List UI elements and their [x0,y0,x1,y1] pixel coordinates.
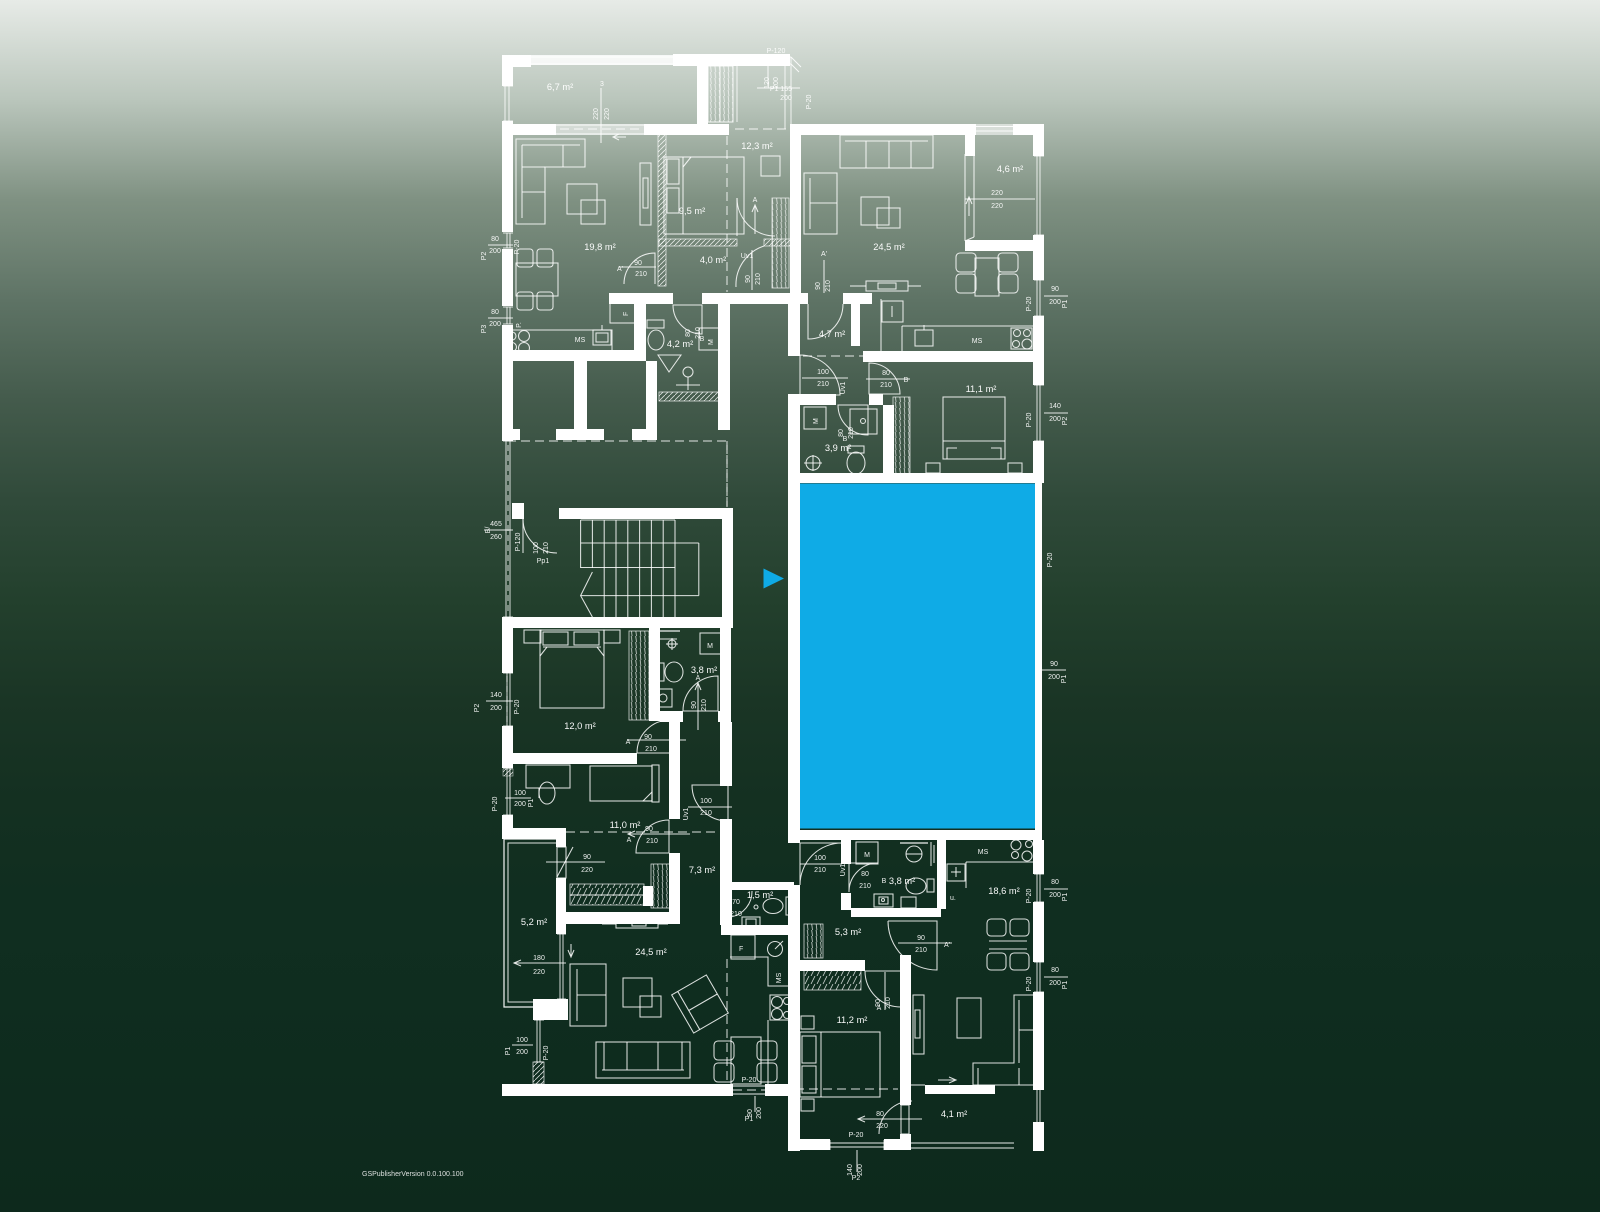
svg-text:Uv1: Uv1 [683,808,690,821]
svg-text:100: 100 [516,1037,528,1044]
svg-text:220: 220 [991,203,1003,210]
svg-text:19,8 m²: 19,8 m² [584,242,616,252]
svg-text:210: 210 [885,997,892,1009]
svg-text:B/: B/ [485,527,492,534]
svg-text:210: 210 [543,542,550,554]
svg-text:P-20: P-20 [543,1046,550,1061]
svg-text:24,5 m²: 24,5 m² [635,947,667,957]
svg-text:100: 100 [514,790,526,797]
svg-text:210: 210 [848,427,855,439]
svg-text:70: 70 [732,899,740,906]
svg-text:P-120: P-120 [767,48,786,55]
svg-text:MS: MS [776,972,783,983]
svg-text:M: M [813,418,820,424]
svg-text:80: 80 [685,329,692,337]
svg-text:GSPublisherVersion 0.0.100.100: GSPublisherVersion 0.0.100.100 [362,1171,464,1178]
svg-text:F: F [623,312,630,316]
svg-text:80: 80 [1051,967,1059,974]
svg-text:90: 90 [1051,286,1059,293]
svg-text:B: B [882,878,887,885]
svg-text:P-20: P-20 [1026,297,1033,312]
svg-text:200: 200 [780,95,792,102]
svg-text:4,2 m²: 4,2 m² [667,339,693,349]
svg-text:80: 80 [882,370,890,377]
svg-text:Uv1: Uv1 [840,382,847,395]
svg-text:210: 210 [814,867,826,874]
svg-text:5,3 m²: 5,3 m² [835,927,861,937]
svg-text:P-20: P-20 [514,700,521,715]
svg-text:P-20: P-20 [1026,413,1033,428]
svg-text:P-20: P-20 [849,1132,864,1139]
svg-text:200: 200 [1049,416,1061,423]
svg-text:210: 210 [755,273,762,285]
svg-text:P-20: P-20 [742,1077,757,1084]
svg-text:90: 90 [645,826,653,833]
svg-text:140: 140 [1049,403,1061,410]
svg-text:6,7 m²: 6,7 m² [547,82,573,92]
svg-text:260: 260 [490,534,502,541]
svg-text:MS: MS [575,337,586,344]
svg-text:4,7 m²: 4,7 m² [819,329,845,339]
svg-text:P2: P2 [1062,417,1069,426]
svg-text:P3: P3 [481,325,488,334]
svg-text:24,5 m²: 24,5 m² [873,242,905,252]
svg-text:220: 220 [581,867,593,874]
svg-text:A: A [877,1005,882,1012]
svg-text:200: 200 [490,705,502,712]
svg-text:3: 3 [600,81,604,88]
svg-text:F: F [739,946,743,953]
svg-text:M: M [864,852,870,859]
svg-text:200: 200 [1048,674,1060,681]
svg-text:210: 210 [700,810,712,817]
svg-text:3,8 m²: 3,8 m² [691,665,717,675]
svg-text:90: 90 [634,260,642,267]
svg-text:210: 210 [645,746,657,753]
svg-text:7,3 m²: 7,3 m² [689,865,715,875]
svg-text:140: 140 [490,692,502,699]
svg-text:P-20: P-20 [1026,977,1033,992]
svg-text:80: 80 [876,1111,884,1118]
svg-text:100: 100 [817,369,829,376]
svg-text:220: 220 [876,1123,888,1130]
svg-text:P.: P. [516,322,523,328]
svg-text:200: 200 [489,321,501,328]
svg-text:P-20: P-20 [1047,553,1054,568]
svg-text:P-20: P-20 [806,95,813,110]
svg-text:P1 155: P1 155 [770,86,792,93]
svg-text:200: 200 [756,1107,763,1119]
svg-text:80: 80 [491,309,499,316]
svg-text:100: 100 [814,855,826,862]
svg-text:90: 90 [691,701,698,709]
svg-text:MS: MS [972,338,983,345]
svg-text:M: M [707,643,713,650]
svg-text:210: 210 [701,699,708,711]
svg-text:P2: P2 [474,704,481,713]
svg-text:A': A' [821,251,827,258]
svg-text:u.: u. [950,895,956,902]
svg-text:4,0 m²: 4,0 m² [700,255,726,265]
svg-text:A': A' [944,942,950,949]
svg-text:Pp1: Pp1 [537,558,550,565]
svg-text:220: 220 [593,108,600,120]
svg-text:210: 210 [859,883,871,890]
svg-text:P1: P1 [1062,300,1069,309]
svg-text:P-20: P-20 [492,797,499,812]
svg-text:4,6 m²: 4,6 m² [997,164,1023,174]
svg-text:3,8 m²: 3,8 m² [889,876,915,886]
svg-text:Uv1: Uv1 [840,864,847,877]
svg-text:P1: P1 [505,1047,512,1056]
svg-text:90: 90 [917,935,925,942]
svg-text:210: 210 [817,381,829,388]
svg-text:12,3 m²: 12,3 m² [741,141,773,151]
svg-text:P-20: P-20 [1026,889,1033,904]
svg-text:80: 80 [1051,879,1059,886]
svg-text:210: 210 [825,280,832,292]
svg-text:11,1 m²: 11,1 m² [966,384,997,394]
svg-text:B: B [904,377,909,384]
svg-text:MS: MS [978,849,989,856]
svg-text:200: 200 [1049,892,1061,899]
svg-text:12,0 m²: 12,0 m² [564,721,596,731]
svg-text:90: 90 [1050,661,1058,668]
svg-text:B: B [700,336,705,343]
svg-text:P1: P1 [1062,893,1069,902]
svg-text:11,0 m²: 11,0 m² [610,820,641,830]
svg-text:1,5 m²: 1,5 m² [747,890,773,900]
svg-text:18,6 m²: 18,6 m² [988,886,1020,896]
svg-text:200: 200 [516,1049,528,1056]
svg-text:180: 180 [533,955,545,962]
svg-text:100: 100 [533,542,540,554]
svg-text:Uv1: Uv1 [741,253,754,260]
svg-text:90: 90 [815,282,822,290]
svg-text:11,2 m²: 11,2 m² [837,1015,868,1025]
svg-text:210: 210 [880,382,892,389]
svg-text:210: 210 [646,838,658,845]
svg-text:90: 90 [745,275,752,283]
svg-text:90: 90 [583,854,591,861]
svg-text:220: 220 [604,108,611,120]
svg-text:M: M [708,339,715,345]
svg-text:210: 210 [730,911,742,918]
svg-text:A: A [626,739,631,746]
svg-text:B: B [843,436,848,443]
svg-text:100: 100 [700,798,712,805]
svg-text:200: 200 [514,801,526,808]
svg-text:9,5 m²: 9,5 m² [679,206,705,216]
svg-text:200: 200 [489,248,501,255]
svg-text:210: 210 [635,271,647,278]
svg-text:A: A [696,675,701,682]
svg-text:P-20: P-20 [514,240,521,255]
svg-text:4,1 m²: 4,1 m² [941,1109,967,1119]
svg-text:P1: P1 [1062,981,1069,990]
svg-text:220: 220 [991,190,1003,197]
svg-text:P-120: P-120 [515,533,522,552]
svg-text:5,2 m²: 5,2 m² [521,917,547,927]
svg-text:80: 80 [861,871,869,878]
svg-text:200: 200 [1049,299,1061,306]
svg-text:80: 80 [491,236,499,243]
svg-text:A: A [753,197,758,204]
svg-text:P1: P1 [745,1116,754,1123]
svg-text:210: 210 [915,947,927,954]
svg-text:3,9 m²: 3,9 m² [825,443,851,453]
svg-text:P2: P2 [852,1175,861,1182]
svg-text:200: 200 [1049,980,1061,987]
svg-text:P1: P1 [528,799,535,808]
svg-text:A: A [627,837,632,844]
svg-text:A': A' [617,266,623,273]
svg-text:P2: P2 [481,252,488,261]
svg-text:P1: P1 [1061,675,1068,684]
svg-text:220: 220 [533,969,545,976]
